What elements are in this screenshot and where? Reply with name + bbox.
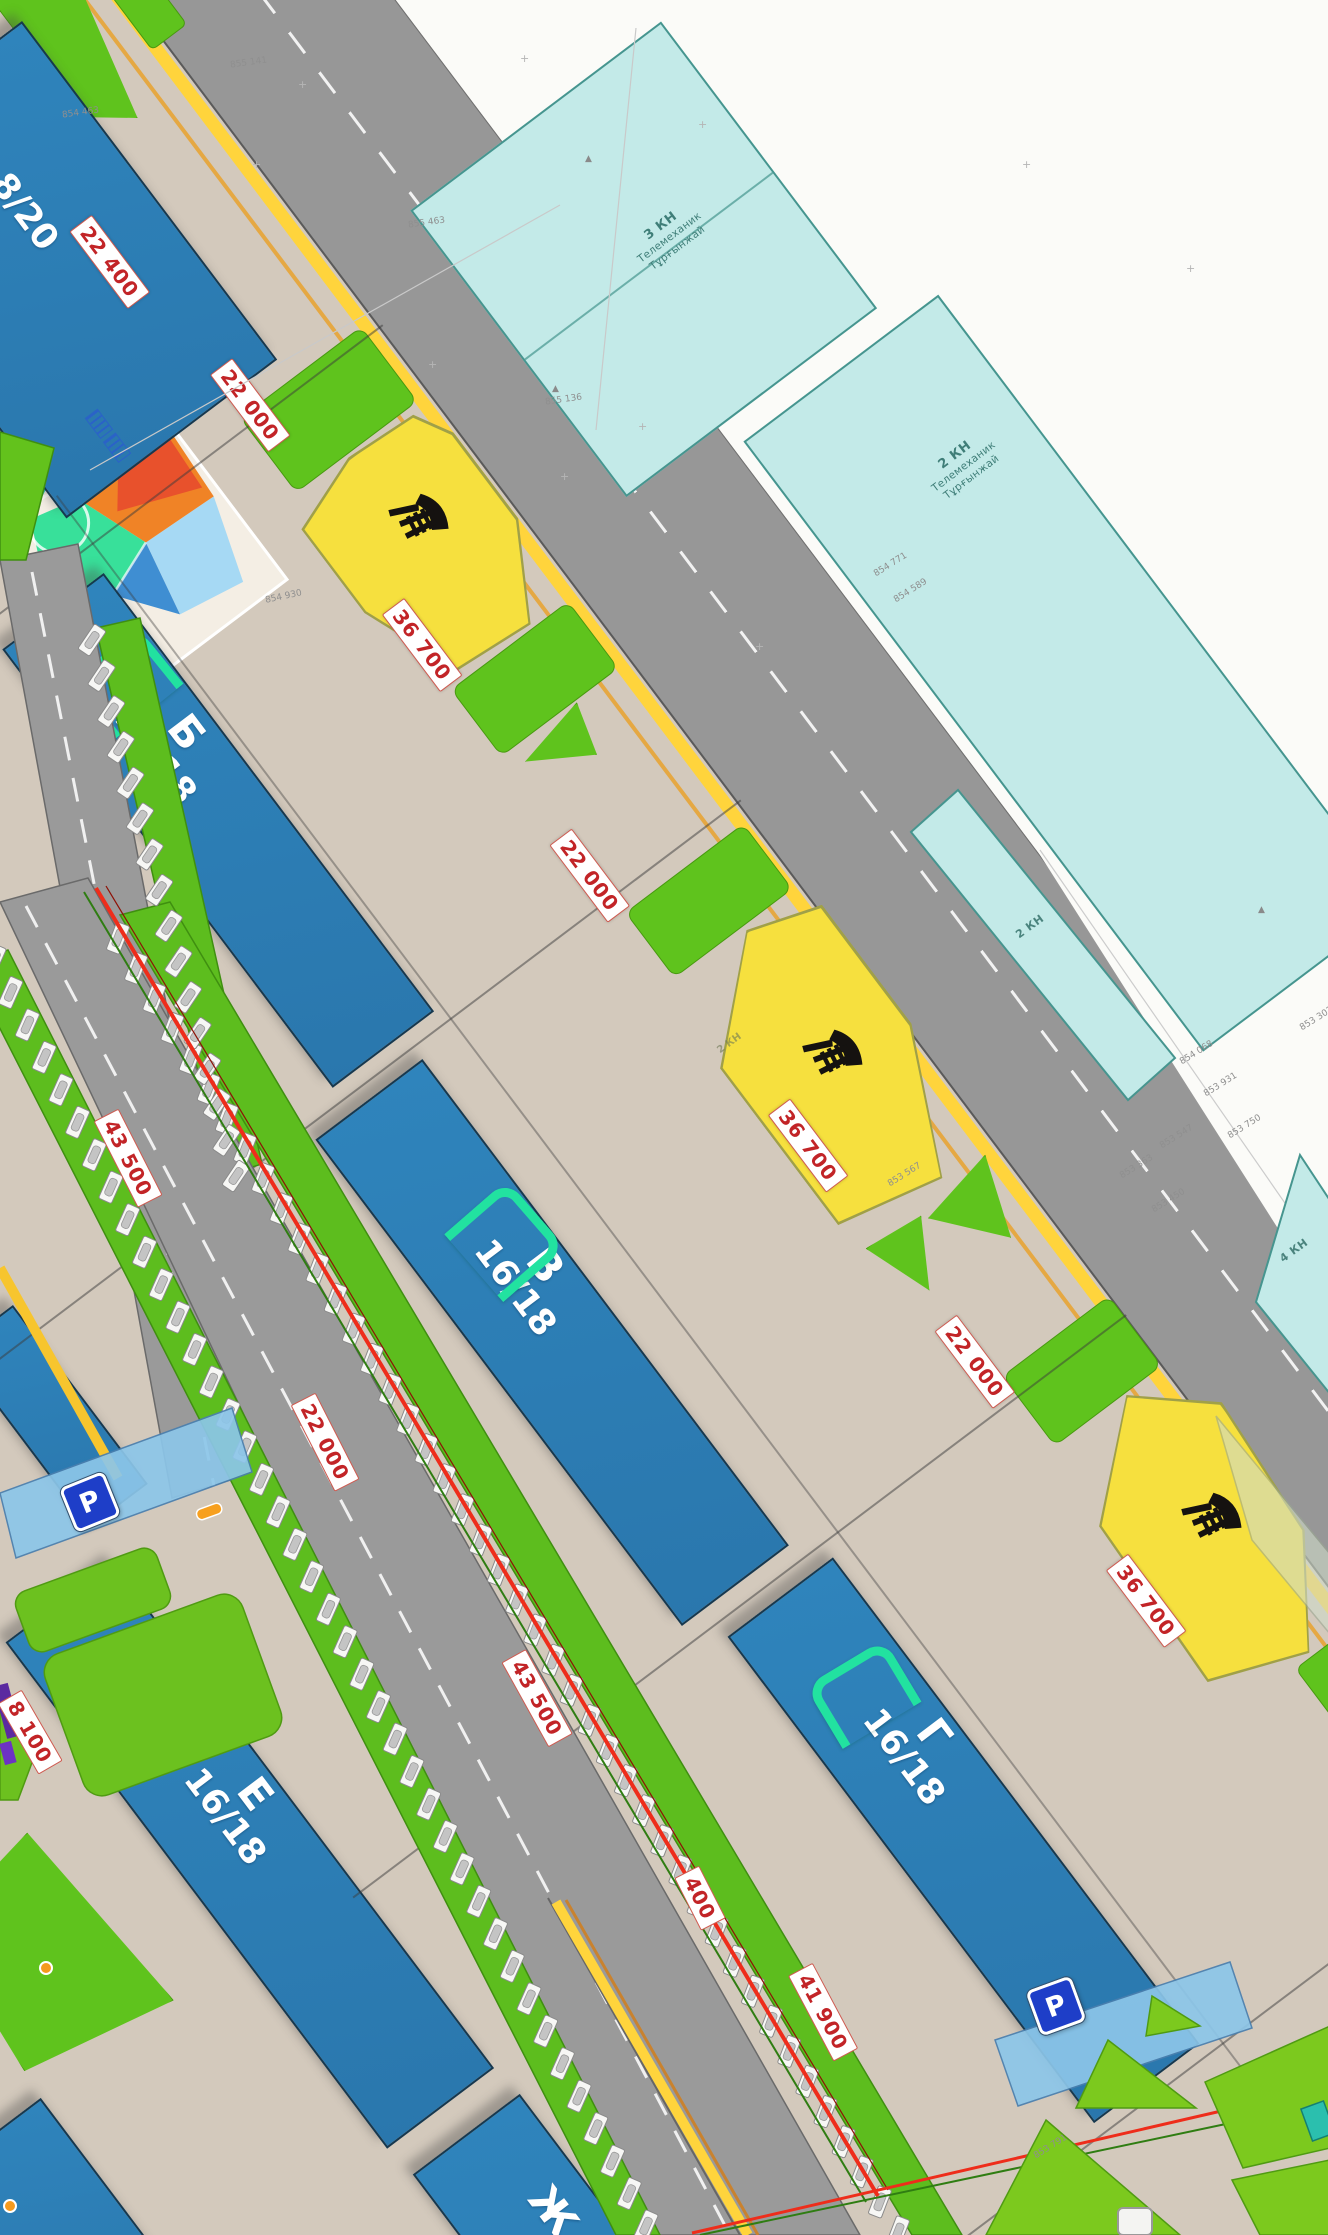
parking-stall <box>560 1674 584 1707</box>
parking-canopy-left <box>0 1408 252 1558</box>
parcel-strip <box>1216 1416 1328 1640</box>
parcel-cyan-strip <box>911 790 1175 1100</box>
cadastral-line <box>596 28 636 430</box>
parking-stall <box>505 1583 529 1616</box>
left-road-stripe <box>0 1268 118 1478</box>
parking-stall <box>523 1614 547 1647</box>
bollard-icon <box>40 1962 52 1974</box>
parking-stall <box>596 1734 620 1767</box>
bollard-icon <box>4 2200 16 2212</box>
red-boundary-line <box>96 888 878 2196</box>
cadastral-line <box>90 205 560 470</box>
green-wedge <box>0 432 54 560</box>
lawn <box>1232 2160 1328 2235</box>
bollard-icon <box>195 1502 223 1521</box>
green-boundary-line <box>84 892 866 2202</box>
parking-stall <box>578 1704 602 1737</box>
lawn <box>1205 2026 1328 2168</box>
parking-stall <box>541 1644 565 1677</box>
roads-overlay <box>0 0 1328 2235</box>
site-plan-canvas: 3 КН Телемеханик Тұрғынжай 2 КН Телемеха… <box>0 0 1328 2235</box>
sign-partial <box>1118 2208 1152 2235</box>
